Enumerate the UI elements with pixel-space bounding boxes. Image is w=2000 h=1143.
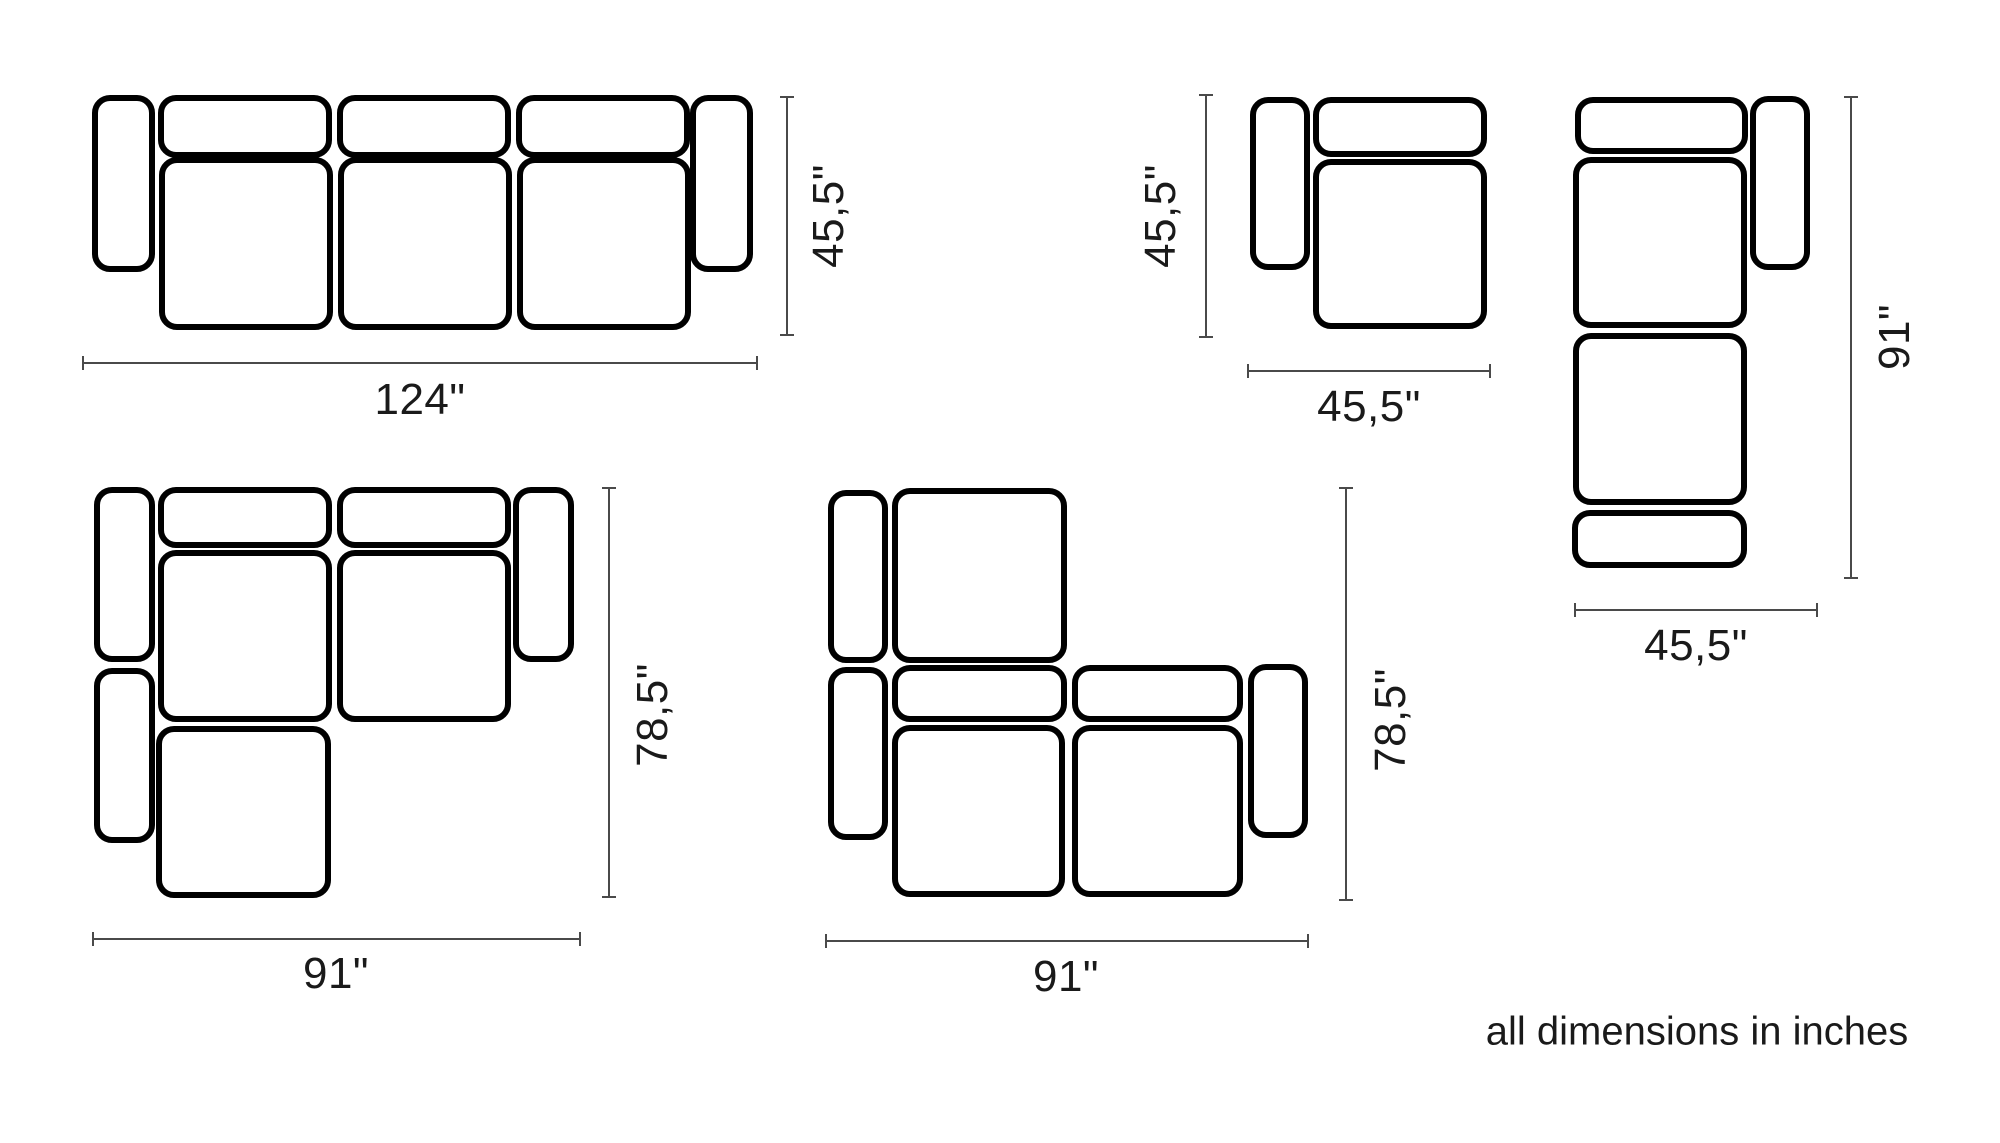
dimension-line xyxy=(786,97,788,335)
dimension-label: 78,5" xyxy=(628,663,678,767)
backrest-module xyxy=(892,665,1067,722)
dimension-line xyxy=(1345,488,1347,900)
armrest-module xyxy=(92,95,155,272)
dimension-tick xyxy=(602,487,616,489)
armrest-module xyxy=(1250,97,1310,270)
armrest-module xyxy=(828,667,888,840)
dimension-tick xyxy=(1199,94,1213,96)
dimension-tick xyxy=(1307,934,1309,948)
seat-module xyxy=(517,157,691,330)
dimension-tick xyxy=(1574,603,1576,617)
dimension-label: 91" xyxy=(1870,304,1920,370)
dimension-tick xyxy=(756,356,758,370)
seat-module xyxy=(892,725,1065,897)
seat-module xyxy=(1072,725,1243,897)
armrest-module xyxy=(690,95,753,272)
dimension-line xyxy=(1850,97,1852,578)
seat-module xyxy=(337,550,511,722)
backrest-module xyxy=(337,487,511,548)
dimension-line xyxy=(83,362,757,364)
dimension-tick xyxy=(780,96,794,98)
dimension-tick xyxy=(82,356,84,370)
dimension-label: 45,5" xyxy=(1644,621,1748,671)
dimension-tick xyxy=(92,932,94,946)
backrest-module xyxy=(516,95,690,158)
backrest-module xyxy=(1313,97,1487,157)
seat-module xyxy=(1573,333,1747,505)
dimension-line xyxy=(608,488,610,897)
dimension-line xyxy=(1575,609,1817,611)
seat-module xyxy=(1573,157,1747,328)
dimension-tick xyxy=(1844,96,1858,98)
seat-module xyxy=(338,157,512,330)
backrest-module xyxy=(158,95,332,158)
backrest-module xyxy=(1572,510,1747,568)
backrest-module xyxy=(337,95,511,158)
units-note: all dimensions in inches xyxy=(1486,1010,1908,1055)
dimension-tick xyxy=(1339,899,1353,901)
seat-module xyxy=(159,157,333,330)
dimension-label: 91" xyxy=(1033,952,1099,1002)
dimension-line xyxy=(826,940,1308,942)
armrest-module xyxy=(513,487,574,662)
seat-module xyxy=(156,726,331,898)
dimension-tick xyxy=(1844,577,1858,579)
dimension-label: 45,5" xyxy=(804,164,854,268)
dimension-label: 45,5" xyxy=(1136,164,1186,268)
armrest-module xyxy=(1248,664,1308,838)
backrest-module xyxy=(1575,97,1748,154)
seat-module xyxy=(1313,159,1487,329)
backrest-module xyxy=(158,487,332,548)
dimension-tick xyxy=(1199,336,1213,338)
seat-module xyxy=(892,488,1067,663)
dimension-tick xyxy=(1247,364,1249,378)
dimension-tick xyxy=(1339,487,1353,489)
backrest-module xyxy=(1072,665,1243,722)
floorplan-canvas: 124"45,5"45,5"45,5"91"45,5"78,5"91"78,5"… xyxy=(0,0,2000,1143)
dimension-label: 45,5" xyxy=(1317,382,1421,432)
dimension-label: 78,5" xyxy=(1366,668,1416,772)
dimension-label: 124" xyxy=(374,375,465,425)
dimension-tick xyxy=(825,934,827,948)
dimension-line xyxy=(1205,95,1207,337)
dimension-tick xyxy=(579,932,581,946)
armrest-module xyxy=(94,487,155,662)
seat-module xyxy=(158,550,332,722)
dimension-tick xyxy=(1489,364,1491,378)
armrest-module xyxy=(1750,96,1810,270)
armrest-module xyxy=(94,668,155,843)
dimension-label: 91" xyxy=(303,949,369,999)
dimension-tick xyxy=(602,896,616,898)
dimension-tick xyxy=(1816,603,1818,617)
armrest-module xyxy=(828,490,888,663)
dimension-line xyxy=(93,938,580,940)
dimension-line xyxy=(1248,370,1490,372)
dimension-tick xyxy=(780,334,794,336)
